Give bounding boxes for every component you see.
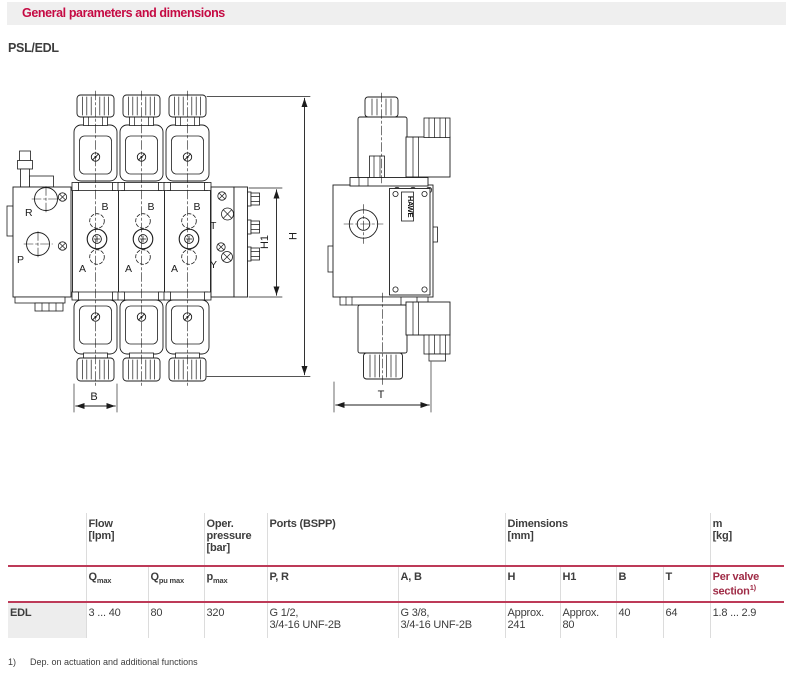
side-view-drawing: HAWE T <box>328 93 450 412</box>
subheader-pr: P, R <box>267 566 398 602</box>
subheader-qpumax: Qpu max <box>148 566 204 602</box>
table-group-header-row: Flow [lpm] Oper. pressure [bar] Ports (B… <box>8 513 784 566</box>
footnote: 1)Dep. on actuation and additional funct… <box>8 657 198 667</box>
table-subheader-row: Qmax Qpu max pmax P, R A, B H H1 B T Per… <box>8 566 784 602</box>
cell-pmax: 320 <box>204 602 267 638</box>
group-header-dimensions: Dimensions [mm] <box>505 513 710 566</box>
valve-section <box>72 91 119 387</box>
cell-dim-h1: Approx. 80 <box>560 602 616 638</box>
page-title: General parameters and dimensions <box>22 2 225 25</box>
dimension-label-b: B <box>90 391 97 403</box>
subheader-pmax: pmax <box>204 566 267 602</box>
cell-dim-h: Approx. 241 <box>505 602 560 638</box>
table-corner-cell <box>8 513 86 566</box>
valve-section <box>164 91 211 387</box>
subheader-empty <box>8 566 86 602</box>
group-header-flow: Flow [lpm] <box>86 513 204 566</box>
model-label: PSL/EDL <box>8 41 59 55</box>
subheader-qmax: Qmax <box>86 566 148 602</box>
end-block: T Y <box>210 187 260 297</box>
footnote-marker: 1) <box>8 657 30 667</box>
subheader-h1: H1 <box>560 566 616 602</box>
cell-qmax: 3 ... 40 <box>86 602 148 638</box>
front-view-drawing: R P T Y <box>7 91 310 412</box>
section-header-bar: General parameters and dimensions <box>7 2 786 25</box>
dimension-label-h1: H1 <box>259 235 271 249</box>
parameters-table-wrap: Flow [lpm] Oper. pressure [bar] Ports (B… <box>8 513 784 638</box>
valve-section <box>118 91 165 387</box>
group-header-pressure: Oper. pressure [bar] <box>204 513 267 566</box>
technical-drawing: B A <box>0 80 560 425</box>
subheader-h: H <box>505 566 560 602</box>
footnote-text: Dep. on actuation and additional functio… <box>30 657 198 667</box>
cell-dim-b: 40 <box>616 602 663 638</box>
cell-qpumax: 80 <box>148 602 204 638</box>
port-label-t: T <box>210 220 217 232</box>
cell-dim-t: 64 <box>663 602 710 638</box>
subheader-b: B <box>616 566 663 602</box>
group-header-ports: Ports (BSPP) <box>267 513 505 566</box>
subheader-per-valve-section: Per valve section1) <box>710 566 784 602</box>
connection-block: R P <box>7 151 71 311</box>
cell-mass: 1.8 ... 2.9 <box>710 602 784 638</box>
subheader-t: T <box>663 566 710 602</box>
row-label-edl: EDL <box>8 602 86 638</box>
cell-ports-ab: G 3/8, 3/4-16 UNF-2B <box>398 602 505 638</box>
port-label-y: Y <box>210 259 217 271</box>
dimension-label-t: T <box>378 389 385 401</box>
table-row-edl: EDL 3 ... 40 80 320 G 1/2, 3/4-16 UNF-2B… <box>8 602 784 638</box>
brand-logo: HAWE <box>406 196 415 218</box>
port-label-r: R <box>25 207 33 219</box>
subheader-ab: A, B <box>398 566 505 602</box>
port-label-p: P <box>17 254 24 266</box>
parameters-table: Flow [lpm] Oper. pressure [bar] Ports (B… <box>8 513 784 638</box>
dimension-label-h: H <box>288 232 300 240</box>
cell-ports-pr: G 1/2, 3/4-16 UNF-2B <box>267 602 398 638</box>
group-header-mass: m [kg] <box>710 513 784 566</box>
